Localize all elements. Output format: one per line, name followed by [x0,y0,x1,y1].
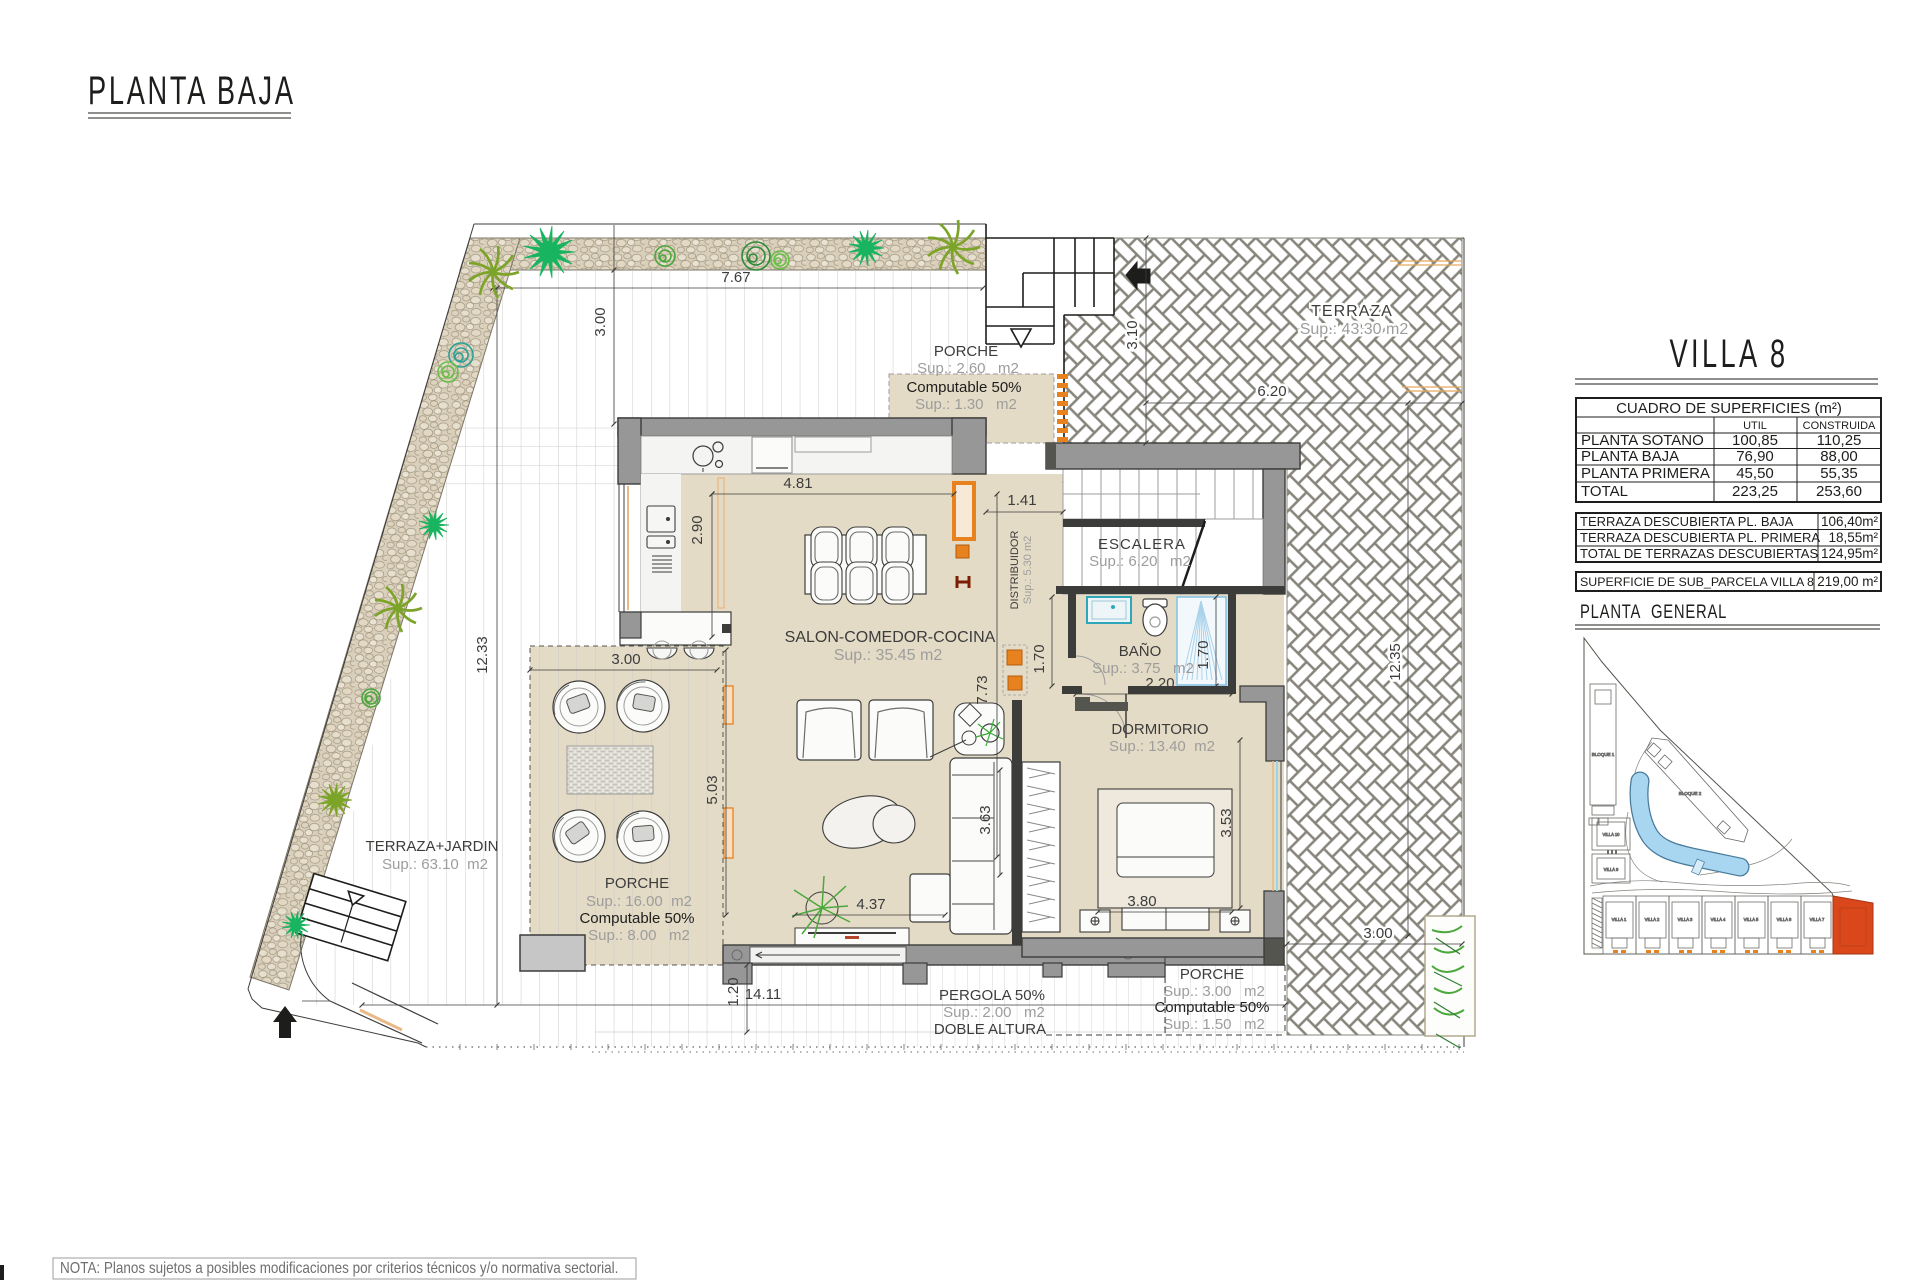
svg-text:VILLA 7: VILLA 7 [1810,917,1825,922]
svg-text:VILLA 6: VILLA 6 [1777,917,1792,922]
svg-text:PLANTA PRIMERA: PLANTA PRIMERA [1581,465,1710,482]
svg-text:ESCALERA: ESCALERA [1098,536,1186,553]
svg-text:Sup.: 3.75 m2: Sup.: 3.75 m2 [1092,660,1194,677]
svg-text:124,95m²: 124,95m² [1821,546,1879,561]
svg-text:PLANTA SOTANO: PLANTA SOTANO [1581,432,1704,449]
svg-text:18,55m²: 18,55m² [1828,530,1878,545]
svg-text:NOTA: Planos sujetos a posible: NOTA: Planos sujetos a posibles modifica… [60,1260,618,1277]
svg-text:PORCHE: PORCHE [934,343,998,360]
svg-text:Sup.: 63.10 m2: Sup.: 63.10 m2 [382,856,488,873]
svg-text:VILLA 1: VILLA 1 [1612,917,1627,922]
svg-text:Sup.: 35.45 m2: Sup.: 35.45 m2 [834,647,943,664]
svg-text:12.33: 12.33 [474,636,491,674]
svg-text:PORCHE: PORCHE [1180,966,1244,983]
svg-text:1.70: 1.70 [1031,644,1048,673]
svg-text:3.00: 3.00 [611,651,640,668]
svg-text:VILLA 9: VILLA 9 [1604,867,1619,872]
svg-text:Sup.: 5.30 m2: Sup.: 5.30 m2 [1022,536,1034,605]
svg-text:Computable 50%: Computable 50% [1154,999,1269,1016]
svg-text:PERGOLA 50%: PERGOLA 50% [939,987,1045,1004]
svg-text:4.81: 4.81 [783,475,812,492]
svg-text:253,60: 253,60 [1816,483,1862,500]
svg-text:14.11: 14.11 [745,986,781,1003]
svg-text:SALON-COMEDOR-COCINA: SALON-COMEDOR-COCINA [785,629,996,646]
svg-text:3.00: 3.00 [1363,925,1392,942]
svg-text:12.35: 12.35 [1387,643,1404,681]
svg-text:TERRAZA: TERRAZA [1311,303,1393,320]
svg-text:PLANTA BAJA: PLANTA BAJA [1581,448,1679,465]
svg-text:PLANTA BAJA: PLANTA BAJA [88,69,296,113]
svg-text:VILLA 2: VILLA 2 [1645,917,1660,922]
svg-text:7.67: 7.67 [721,269,750,286]
svg-text:110,25: 110,25 [1817,432,1862,449]
svg-text:VILLA 3: VILLA 3 [1678,917,1693,922]
svg-text:223,25: 223,25 [1732,483,1778,500]
svg-text:Sup.: 43.30 m2: Sup.: 43.30 m2 [1300,321,1409,338]
svg-text:Sup.: 8.00 m2: Sup.: 8.00 m2 [588,927,690,944]
svg-text:BAÑO: BAÑO [1119,643,1162,660]
svg-text:BLOQUE 2: BLOQUE 2 [1679,791,1702,796]
svg-text:VILLA 10: VILLA 10 [1603,832,1621,837]
svg-text:PORCHE: PORCHE [605,875,669,892]
svg-text:PLANTA GENERAL: PLANTA GENERAL [1580,601,1727,622]
svg-text:DORMITORIO: DORMITORIO [1111,721,1208,738]
svg-text:Computable 50%: Computable 50% [906,379,1021,396]
svg-text:7.73: 7.73 [974,675,991,704]
svg-text:2.20: 2.20 [1145,675,1174,692]
svg-text:TOTAL DE TERRAZAS DESCUBIERTAS: TOTAL DE TERRAZAS DESCUBIERTAS [1580,546,1818,561]
svg-text:DISTRIBUIDOR: DISTRIBUIDOR [1009,531,1021,610]
svg-text:Sup.: 2.00 m2: Sup.: 2.00 m2 [943,1004,1045,1021]
svg-text:1.41: 1.41 [1007,492,1036,509]
svg-text:CUADRO DE SUPERFICIES (m²): CUADRO DE SUPERFICIES (m²) [1616,400,1842,417]
svg-text:Sup.: 13.40 m2: Sup.: 13.40 m2 [1109,738,1215,755]
svg-text:Sup.: 2.60 m2: Sup.: 2.60 m2 [917,360,1019,377]
svg-text:TOTAL: TOTAL [1581,483,1628,500]
svg-text:3.00: 3.00 [592,307,609,336]
svg-text:TERRAZA DESCUBIERTA PL. PRIMER: TERRAZA DESCUBIERTA PL. PRIMERA [1580,530,1820,545]
svg-text:DOBLE ALTURA: DOBLE ALTURA [934,1021,1046,1038]
svg-text:Sup.: 3.00 m2: Sup.: 3.00 m2 [1163,983,1265,1000]
svg-text:Sup.: 16.00 m2: Sup.: 16.00 m2 [586,893,692,910]
svg-text:VILLA 5: VILLA 5 [1744,917,1759,922]
svg-text:55,35: 55,35 [1820,465,1858,482]
svg-text:5.03: 5.03 [704,775,721,804]
svg-text:88,00: 88,00 [1820,448,1858,465]
svg-text:SUPERFICIE DE SUB_PARCELA VILL: SUPERFICIE DE SUB_PARCELA VILLA 8 [1580,575,1814,589]
svg-text:1.20: 1.20 [725,977,742,1006]
svg-text:1.70: 1.70 [1195,640,1212,669]
svg-text:45,50: 45,50 [1736,465,1774,482]
svg-text:Sup.: 1.30 m2: Sup.: 1.30 m2 [915,396,1017,413]
svg-text:6.20: 6.20 [1257,383,1286,400]
svg-text:Sup.: 1.50 m2: Sup.: 1.50 m2 [1163,1016,1265,1033]
svg-text:3.53: 3.53 [1218,808,1235,837]
svg-text:VILLA 8: VILLA 8 [1669,332,1788,376]
svg-text:3.63: 3.63 [977,805,994,834]
svg-text:2.90: 2.90 [689,515,706,544]
svg-text:VILLA 4: VILLA 4 [1711,917,1726,922]
svg-text:CONSTRUIDA: CONSTRUIDA [1803,420,1876,432]
svg-text:Computable 50%: Computable 50% [579,910,694,927]
svg-text:219,00 m²: 219,00 m² [1817,574,1878,589]
svg-text:76,90: 76,90 [1736,448,1774,465]
svg-text:106,40m²: 106,40m² [1821,514,1879,529]
svg-text:UTIL: UTIL [1743,420,1767,432]
svg-text:TERRAZA+JARDIN: TERRAZA+JARDIN [366,838,499,855]
svg-text:4.37: 4.37 [856,896,885,913]
svg-text:3.80: 3.80 [1127,893,1156,910]
svg-text:Sup.: 6.20 m2: Sup.: 6.20 m2 [1089,553,1191,570]
svg-text:TERRAZA DESCUBIERTA PL. BAJA: TERRAZA DESCUBIERTA PL. BAJA [1580,514,1794,529]
svg-text:3.10: 3.10 [1124,320,1141,349]
svg-text:BLOQUE 1: BLOQUE 1 [1592,752,1615,757]
svg-text:100,85: 100,85 [1732,432,1778,449]
